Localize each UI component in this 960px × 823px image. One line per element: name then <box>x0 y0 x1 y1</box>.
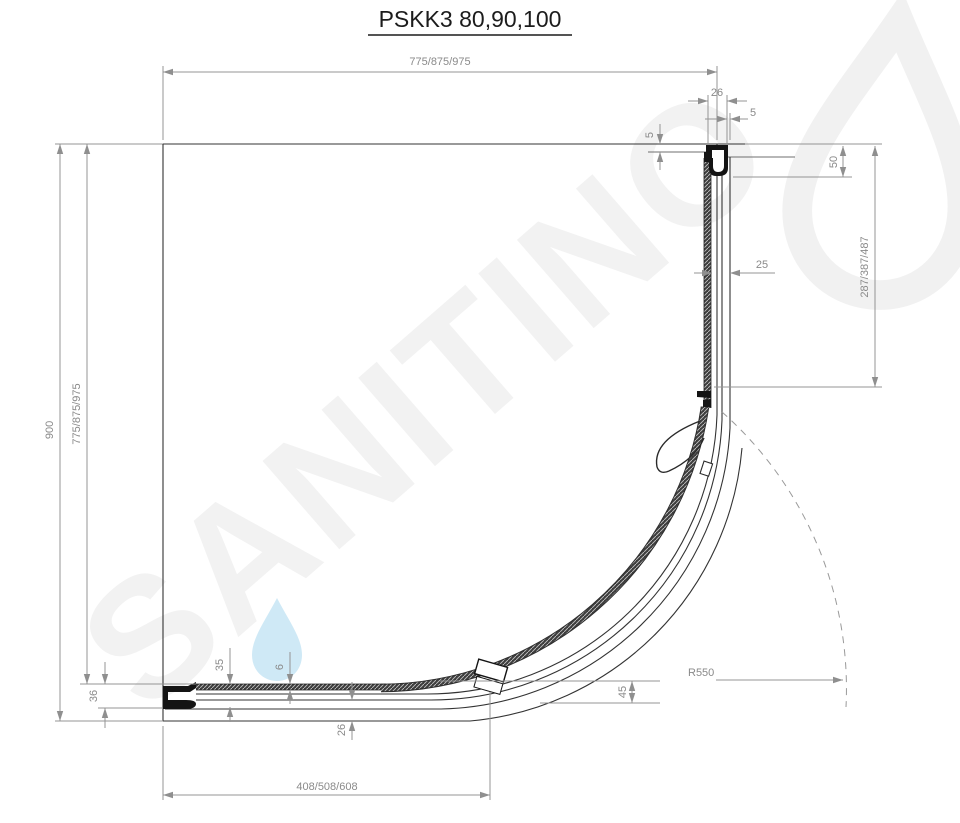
dim-inner-width-label: 775/875/975 <box>71 383 83 444</box>
drawing-page: SANITINO PSKK3 80,90,100 <box>0 0 960 823</box>
dim-top-profile-depth-label: 26 <box>711 87 723 99</box>
dim-bottom-fixed-panel-label: 408/508/608 <box>296 781 357 793</box>
fixed-glass-panel-bottom <box>196 684 386 690</box>
watermark: SANITINO <box>46 14 960 745</box>
dim-bracket-height-label: 50 <box>828 156 840 168</box>
dim-glass-inset-label: 5 <box>644 132 656 138</box>
dim-glass-thickness-label: 6 <box>274 664 286 670</box>
dim-left-profile-height-label: 36 <box>88 690 100 702</box>
dim-door-edge-gap-label: 45 <box>617 686 629 698</box>
title-text: PSKK3 80,90,100 <box>379 6 562 32</box>
dim-right-fixed-panel-label: 287/387/487 <box>859 236 871 297</box>
watermark-droplet-outline-icon <box>789 14 960 304</box>
dim-top-gap-label: 5 <box>750 107 756 119</box>
page-title: PSKK3 80,90,100 <box>368 6 572 35</box>
dim-glass-offset-label: 25 <box>756 259 768 271</box>
technical-drawing-svg: SANITINO PSKK3 80,90,100 <box>0 0 960 823</box>
dim-top-width-label: 775/875/975 <box>409 56 470 68</box>
dim-bottom-profile-height-label: 35 <box>214 659 226 671</box>
dim-bottom-profile-depth-label: 26 <box>336 724 348 736</box>
dim-curve-radius-label: R550 <box>688 667 714 679</box>
dim-total-depth-label: 900 <box>44 421 56 439</box>
fixed-glass-panel-right <box>704 158 711 408</box>
